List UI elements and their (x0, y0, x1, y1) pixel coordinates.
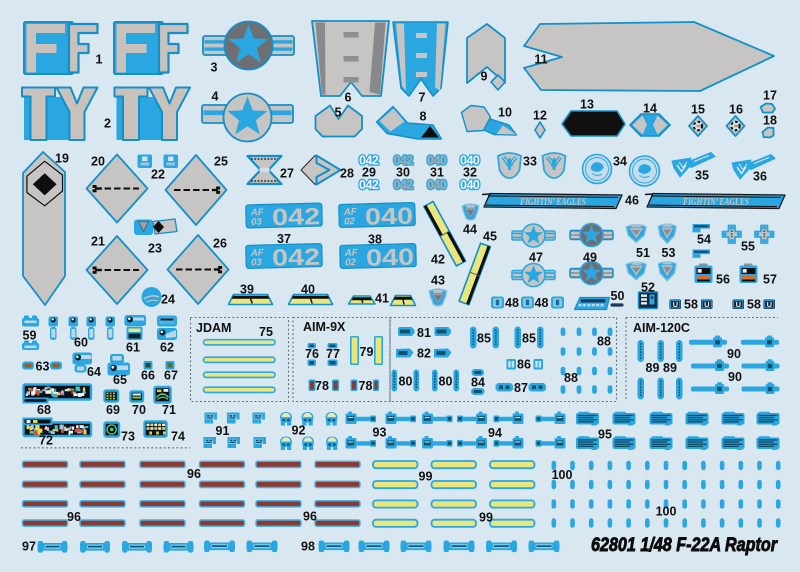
svg-text:71: 71 (162, 403, 176, 417)
svg-text:99: 99 (479, 511, 493, 525)
svg-text:86: 86 (517, 358, 531, 372)
svg-text:040: 040 (460, 178, 480, 192)
svg-text:15: 15 (691, 103, 705, 117)
svg-text:6: 6 (345, 91, 352, 105)
svg-text:U: U (673, 300, 678, 309)
svg-text:100: 100 (552, 468, 573, 482)
svg-text:76: 76 (305, 347, 319, 361)
svg-text:34: 34 (613, 155, 627, 169)
svg-text:17: 17 (763, 89, 777, 103)
svg-text:16: 16 (729, 103, 743, 117)
svg-text:20: 20 (91, 155, 105, 169)
svg-text:32: 32 (463, 166, 477, 180)
svg-text:29: 29 (362, 166, 376, 180)
svg-text:040: 040 (365, 203, 414, 230)
svg-text:60: 60 (74, 336, 88, 350)
svg-text:U: U (767, 300, 772, 309)
svg-text:95: 95 (598, 428, 612, 442)
svg-text:88: 88 (564, 371, 578, 385)
svg-text:52: 52 (641, 281, 655, 295)
svg-text:85: 85 (477, 332, 491, 346)
svg-text:02: 02 (345, 257, 357, 268)
svg-text:22: 22 (151, 168, 165, 182)
svg-text:82: 82 (417, 347, 431, 361)
svg-text:58: 58 (684, 298, 698, 312)
svg-text:62801 1/48 F-22A Raptor: 62801 1/48 F-22A Raptor (591, 534, 778, 556)
svg-text:66: 66 (141, 369, 155, 383)
svg-text:042: 042 (272, 203, 321, 230)
svg-text:31: 31 (430, 166, 444, 180)
svg-text:25: 25 (214, 155, 228, 169)
svg-text:5: 5 (335, 106, 342, 120)
svg-text:FIGHTIN’ EAGLES: FIGHTIN’ EAGLES (682, 196, 749, 208)
svg-text:96: 96 (303, 510, 317, 524)
svg-text:54: 54 (697, 233, 711, 247)
svg-text:40: 40 (301, 283, 315, 297)
svg-text:03: 03 (251, 217, 263, 228)
svg-text:79: 79 (360, 345, 374, 359)
svg-text:7: 7 (419, 91, 426, 105)
svg-text:2: 2 (104, 117, 111, 131)
svg-text:90: 90 (728, 370, 742, 384)
svg-text:U: U (736, 300, 741, 309)
svg-text:69: 69 (106, 403, 120, 417)
svg-text:65: 65 (113, 373, 127, 387)
svg-text:89: 89 (646, 361, 660, 375)
svg-text:042: 042 (272, 244, 321, 271)
svg-text:99: 99 (419, 470, 433, 484)
svg-text:45: 45 (483, 230, 497, 244)
svg-text:23: 23 (148, 242, 162, 256)
svg-text:100: 100 (656, 505, 677, 519)
svg-text:68: 68 (37, 403, 51, 417)
svg-text:46: 46 (625, 194, 639, 208)
svg-text:61: 61 (126, 341, 140, 355)
svg-text:84: 84 (471, 376, 485, 390)
svg-text:FIGHTIN’ EAGLES: FIGHTIN’ EAGLES (519, 196, 586, 208)
svg-text:35: 35 (695, 169, 709, 183)
svg-text:91: 91 (216, 424, 230, 438)
svg-text:48: 48 (505, 296, 519, 310)
svg-text:24: 24 (161, 293, 175, 307)
svg-text:73: 73 (121, 430, 135, 444)
svg-text:53: 53 (662, 246, 676, 260)
svg-text:AIM-9X: AIM-9X (303, 320, 346, 334)
svg-text:94: 94 (488, 426, 502, 440)
svg-text:58: 58 (747, 298, 761, 312)
svg-text:38: 38 (368, 233, 382, 247)
svg-text:33: 33 (523, 155, 537, 169)
svg-text:98: 98 (301, 540, 315, 554)
svg-text:96: 96 (67, 510, 81, 524)
svg-text:02: 02 (344, 216, 356, 227)
svg-text:72: 72 (39, 434, 53, 448)
svg-text:93: 93 (373, 426, 387, 440)
svg-text:37: 37 (277, 232, 291, 246)
svg-text:78: 78 (315, 379, 329, 393)
svg-text:67: 67 (164, 369, 178, 383)
svg-text:63: 63 (36, 360, 50, 374)
svg-text:040: 040 (366, 244, 415, 271)
svg-text:74: 74 (171, 430, 185, 444)
svg-text:1: 1 (96, 53, 103, 67)
svg-text:80: 80 (399, 375, 413, 389)
svg-text:88: 88 (597, 335, 611, 349)
svg-text:80: 80 (439, 375, 453, 389)
svg-text:96: 96 (187, 467, 201, 481)
svg-text:11: 11 (534, 53, 547, 67)
svg-text:21: 21 (91, 235, 105, 249)
svg-text:27: 27 (280, 167, 294, 181)
svg-text:4: 4 (212, 90, 219, 104)
svg-text:78: 78 (359, 379, 373, 393)
svg-text:U: U (704, 300, 709, 309)
svg-text:62: 62 (160, 341, 174, 355)
svg-text:75: 75 (259, 325, 273, 339)
svg-text:9: 9 (481, 70, 488, 84)
svg-text:41: 41 (375, 292, 389, 306)
svg-text:70: 70 (132, 403, 146, 417)
svg-text:47: 47 (529, 251, 543, 265)
svg-text:8: 8 (420, 110, 427, 124)
svg-text:14: 14 (643, 102, 657, 116)
svg-text:040: 040 (427, 178, 447, 192)
svg-text:77: 77 (326, 347, 340, 361)
svg-text:39: 39 (240, 283, 254, 297)
svg-text:50: 50 (611, 289, 625, 303)
svg-text:89: 89 (663, 361, 677, 375)
svg-text:28: 28 (340, 167, 354, 181)
svg-text:30: 30 (396, 166, 410, 180)
svg-text:56: 56 (716, 273, 730, 287)
svg-text:19: 19 (55, 152, 69, 166)
svg-text:12: 12 (533, 109, 547, 123)
svg-text:48: 48 (535, 296, 549, 310)
svg-text:AIM-120C: AIM-120C (633, 321, 690, 335)
svg-text:97: 97 (22, 540, 36, 554)
svg-text:55: 55 (741, 240, 755, 254)
svg-text:10: 10 (498, 106, 512, 120)
svg-text:18: 18 (763, 114, 777, 128)
svg-text:26: 26 (213, 237, 227, 251)
svg-text:03: 03 (251, 257, 263, 268)
svg-text:81: 81 (417, 326, 431, 340)
svg-text:87: 87 (514, 381, 528, 395)
svg-text:43: 43 (431, 274, 445, 288)
svg-text:59: 59 (23, 329, 37, 343)
svg-text:57: 57 (763, 273, 777, 287)
svg-text:51: 51 (636, 246, 650, 260)
svg-text:49: 49 (583, 251, 597, 265)
svg-text:42: 42 (431, 253, 445, 267)
svg-text:042: 042 (394, 178, 414, 192)
svg-text:85: 85 (522, 332, 536, 346)
svg-text:64: 64 (87, 365, 101, 379)
svg-text:13: 13 (580, 98, 594, 112)
svg-text:042: 042 (359, 178, 379, 192)
svg-text:3: 3 (211, 61, 218, 75)
svg-text:36: 36 (753, 170, 767, 184)
svg-text:JDAM: JDAM (196, 321, 231, 335)
svg-text:90: 90 (727, 347, 741, 361)
svg-text:92: 92 (292, 424, 306, 438)
svg-text:44: 44 (463, 223, 477, 237)
